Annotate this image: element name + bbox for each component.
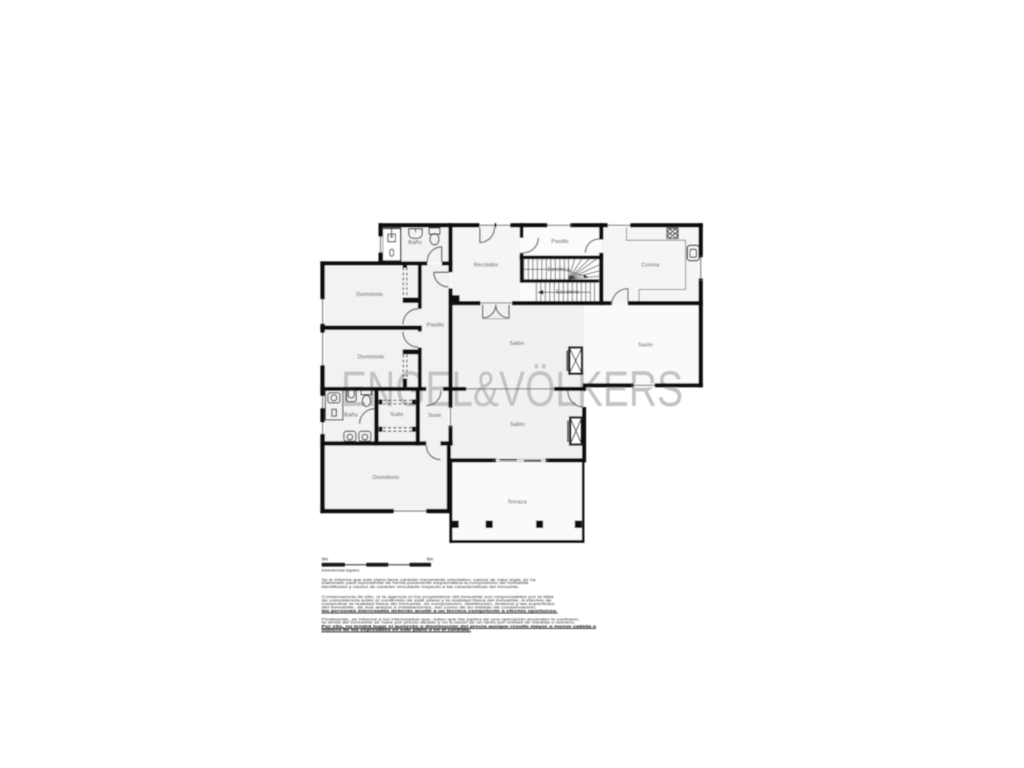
svg-text:Baño: Baño (344, 413, 357, 419)
svg-text:Escalera: Escalera (548, 267, 571, 273)
svg-text:Suite: Suite (428, 413, 441, 419)
svg-text:Dormitorio: Dormitorio (356, 292, 383, 298)
svg-text:Escalera: Escalera (556, 289, 579, 295)
svg-text:Terraza: Terraza (507, 500, 527, 506)
svg-text:número de los expresados en es: número de los expresados en este plano o… (322, 627, 471, 632)
svg-text:Salón: Salón (510, 422, 525, 428)
svg-text:las personas interesadas deber: las personas interesadas deberán acudir … (322, 608, 558, 613)
svg-text:Pasillo: Pasillo (551, 239, 568, 245)
svg-text:5m: 5m (427, 557, 434, 562)
svg-text:Baño: Baño (408, 240, 421, 246)
svg-text:Recibidor: Recibidor (474, 263, 499, 269)
svg-text:Salón: Salón (509, 341, 524, 347)
svg-text:0m: 0m (322, 557, 329, 562)
svg-text:Dormitorio: Dormitorio (358, 355, 385, 361)
svg-text:Dormitorio: Dormitorio (372, 475, 399, 481)
svg-text:Advertencias legales:: Advertencias legales: (322, 567, 361, 572)
svg-text:Cocina: Cocina (641, 263, 660, 269)
svg-text:Suite: Suite (390, 412, 403, 418)
svg-text:Salón: Salón (638, 343, 653, 349)
svg-text:identificado y carece de carác: identificado y carece de carácter vincul… (322, 584, 520, 589)
svg-text:Pasillo: Pasillo (427, 322, 444, 328)
